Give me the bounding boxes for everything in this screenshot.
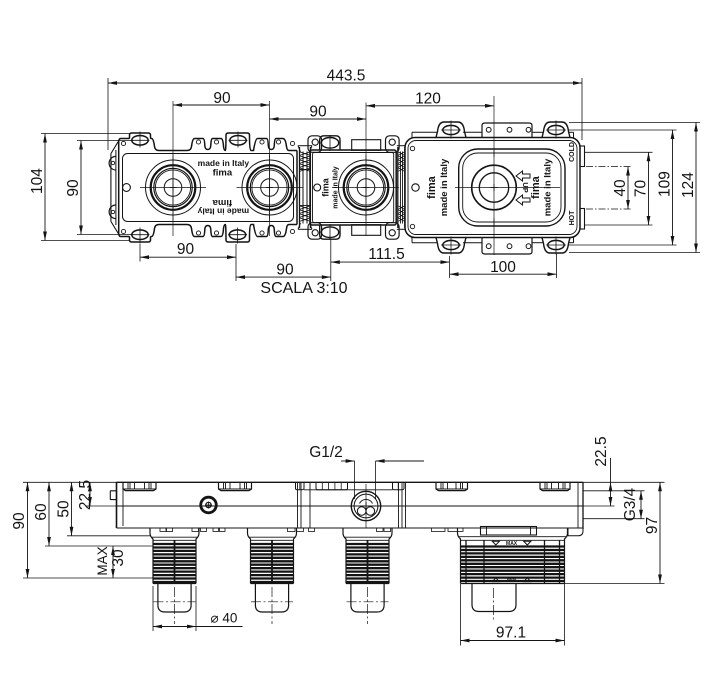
svg-text:SCALA 3:10: SCALA 3:10 <box>260 280 347 297</box>
svg-text:fima: fima <box>212 197 232 208</box>
svg-text:104: 104 <box>29 168 46 194</box>
svg-text:120: 120 <box>415 90 441 107</box>
svg-text:G3/4: G3/4 <box>622 487 639 521</box>
svg-text:fima: fima <box>321 177 331 197</box>
svg-text:made in Italy: made in Italy <box>439 158 450 216</box>
svg-text:90: 90 <box>11 512 28 530</box>
svg-text:G1/2: G1/2 <box>309 444 343 461</box>
svg-text:MAX: MAX <box>95 546 110 575</box>
svg-text:made in Italy: made in Italy <box>333 166 340 209</box>
svg-text:fima: fima <box>530 175 542 199</box>
svg-text:97: 97 <box>644 517 661 534</box>
svg-text:22.5: 22.5 <box>77 480 94 510</box>
svg-text:90: 90 <box>65 179 82 197</box>
svg-text:UP: UP <box>521 182 530 192</box>
svg-text:30: 30 <box>110 549 127 567</box>
svg-text:90: 90 <box>177 241 195 258</box>
svg-text:97.1: 97.1 <box>496 625 526 642</box>
svg-text:fima: fima <box>213 167 233 178</box>
svg-text:made in Italy: made in Italy <box>197 206 249 216</box>
svg-text:COLD: COLD <box>569 142 576 162</box>
svg-text:⌀ 40: ⌀ 40 <box>211 611 238 626</box>
svg-text:109: 109 <box>657 171 674 197</box>
svg-text:50: 50 <box>56 500 73 518</box>
svg-text:MIN: MIN <box>507 578 517 584</box>
svg-text:90: 90 <box>309 104 327 121</box>
svg-text:made in Italy: made in Italy <box>543 158 554 216</box>
svg-text:MAX: MAX <box>506 541 518 547</box>
svg-text:443.5: 443.5 <box>327 68 366 85</box>
svg-text:60: 60 <box>33 503 50 521</box>
svg-text:100: 100 <box>490 259 516 276</box>
svg-text:HOT: HOT <box>569 210 576 226</box>
svg-text:90: 90 <box>276 261 294 278</box>
svg-text:90: 90 <box>213 90 231 107</box>
svg-text:fima: fima <box>426 175 438 199</box>
svg-text:40: 40 <box>612 179 629 197</box>
svg-text:22.5: 22.5 <box>593 436 610 466</box>
svg-text:111.5: 111.5 <box>368 246 405 263</box>
svg-text:70: 70 <box>633 180 650 198</box>
svg-text:124: 124 <box>680 172 697 198</box>
